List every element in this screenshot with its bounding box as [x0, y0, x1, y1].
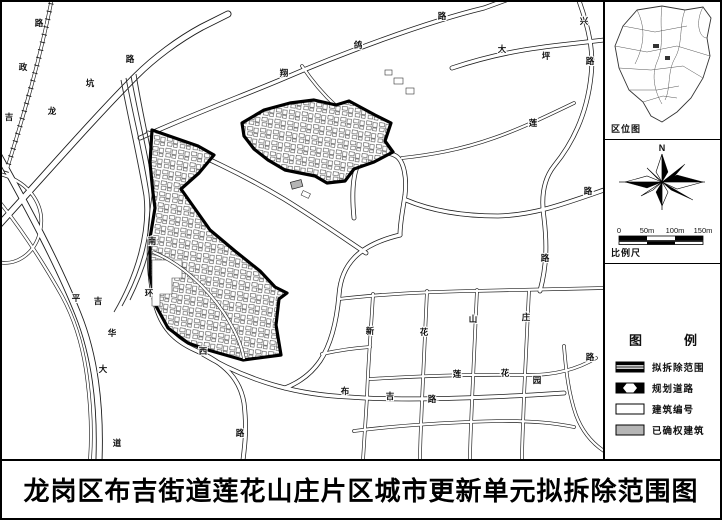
road-label: 路 [126, 54, 135, 64]
road-label: 山 [469, 314, 478, 324]
road-label: 大 [99, 364, 108, 374]
north-label: N [659, 143, 666, 153]
scale-tick-150: 150m [694, 226, 713, 235]
road-label: 坪 [542, 51, 551, 61]
title-bar: 龙岗区布吉街道莲花山庄片区城市更新单元拟拆除范围图 [2, 459, 720, 518]
planned-road-symbol [615, 382, 645, 394]
road-label: 翔 [279, 68, 289, 78]
main-map: 吉政路龙坑路翔鸽路大坪兴路莲路路南环西路平吉华大道布吉路莲花园路新花山庄 [2, 2, 603, 459]
road-label: 环 [145, 288, 154, 298]
road-label: 新 [366, 326, 375, 336]
road-label: 庄 [522, 312, 531, 322]
legend-item-demolition-boundary: 拟拆除范围 [615, 360, 720, 374]
road-label: 路 [428, 394, 437, 404]
legend-panel: 图例 拟拆除范围 规划道路 [605, 264, 720, 459]
building-number-symbol [615, 403, 645, 415]
legend-title: 图例 [629, 330, 720, 346]
location-inset-map [605, 2, 720, 132]
legend-item-planned-road: 规划道路 [615, 381, 720, 395]
map-title: 龙岗区布吉街道莲花山庄片区城市更新单元拟拆除范围图 [23, 471, 698, 508]
road-label: 华 [108, 328, 117, 338]
scale-tick-50: 50m [640, 226, 655, 235]
road-label: 花 [501, 368, 510, 378]
compass-petals [625, 154, 703, 206]
road-label: 路 [236, 428, 245, 438]
location-map-label: 区位图 [611, 122, 641, 135]
demolition-areas [150, 100, 393, 360]
sidebar: 区位图 N [603, 2, 720, 459]
road-label: 坑 [86, 78, 95, 88]
road-label: 园 [533, 375, 542, 385]
demolition-area-north [242, 100, 393, 183]
compass-rose: N [605, 140, 720, 218]
road-label: 吉 [386, 391, 395, 401]
road-label: 路 [541, 253, 550, 263]
scale-tick-0: 0 [617, 226, 621, 235]
road-label: 龙 [47, 106, 57, 116]
road-label: 平 [72, 293, 81, 303]
location-map-panel: 区位图 [605, 2, 720, 140]
road-label: 路 [438, 11, 447, 21]
road-label: 路 [35, 18, 44, 28]
road-label: 路 [586, 352, 595, 362]
map-canvas: 吉政路龙坑路翔鸽路大坪兴路莲路路南环西路平吉华大道布吉路莲花园路新花山庄 [2, 2, 603, 459]
confirmed-building-symbol [615, 424, 645, 436]
road-label: 花 [420, 327, 429, 337]
road-label: 莲 [529, 118, 538, 128]
road-label: 西 [199, 346, 208, 356]
road-label: 吉 [94, 296, 103, 306]
compass-scale-panel: N 0 [605, 140, 720, 264]
road-label: 兴 [580, 16, 589, 26]
legend-item-confirmed-building: 已确权建筑 [615, 423, 720, 437]
road-network-fill [2, 2, 603, 459]
legend-item-building-number: 建筑编号 [615, 402, 720, 416]
demolition-boundary-symbol [615, 361, 645, 373]
road-label: 路 [584, 186, 593, 196]
road-label: 布 [340, 386, 350, 396]
road-label: 南 [148, 236, 157, 246]
road-label: 路 [586, 56, 595, 66]
drawing-sheet: 吉政路龙坑路翔鸽路大坪兴路莲路路南环西路平吉华大道布吉路莲花园路新花山庄 [0, 0, 722, 520]
road-label: 大 [498, 44, 507, 54]
scale-label: 比例尺 [611, 246, 641, 259]
road-label: 道 [113, 438, 122, 448]
scale-tick-100: 100m [666, 226, 685, 235]
road-label: 莲 [453, 369, 462, 379]
road-label: 吉 [5, 112, 14, 122]
road-label: 鸽 [354, 40, 363, 50]
road-label: 政 [19, 62, 28, 72]
